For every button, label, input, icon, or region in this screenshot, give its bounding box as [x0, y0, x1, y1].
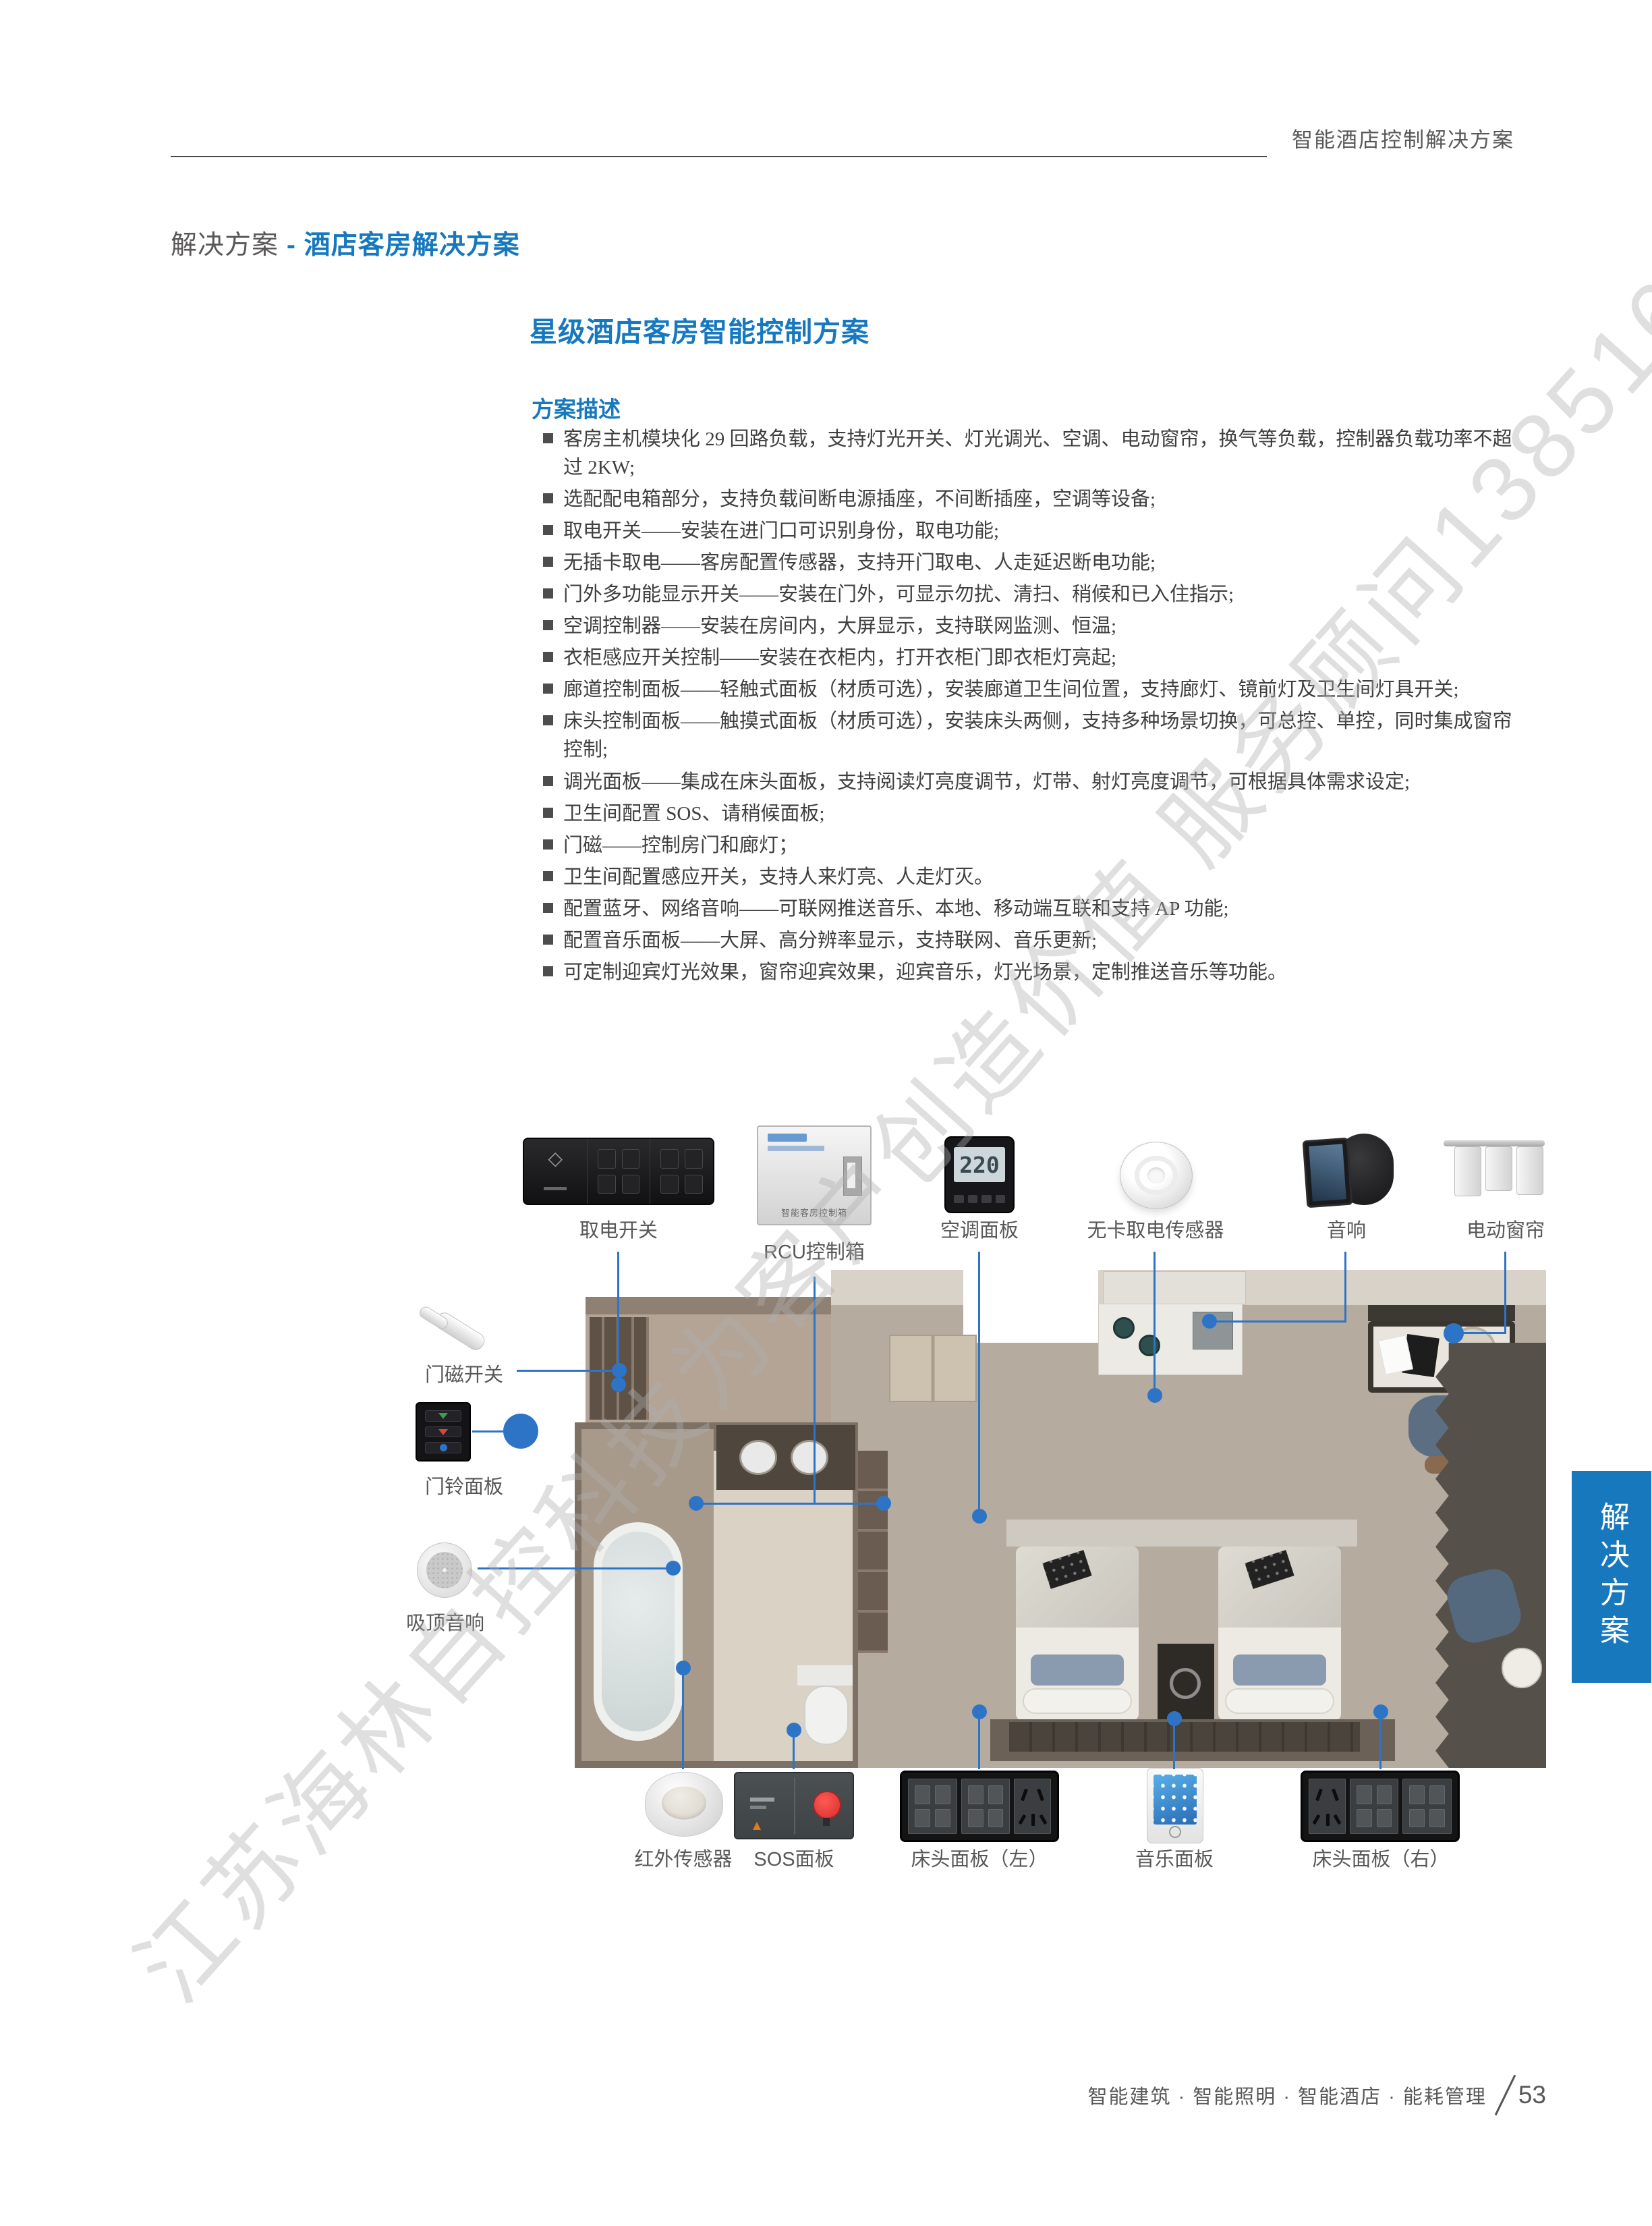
header-rule — [171, 156, 1267, 157]
connector-ceiling-speaker — [478, 1567, 666, 1569]
button-key — [622, 1175, 640, 1194]
sos-button — [813, 1791, 841, 1819]
device-label-rcu-box: RCU控制箱 — [764, 1236, 865, 1264]
floorplan-toilet-tank — [797, 1665, 853, 1686]
page-footer: 智能建筑 · 智能照明 · 智能酒店 · 能耗管理 53 — [1088, 2073, 1546, 2117]
device-label-cardless-sensor: 无卡取电传感器 — [1087, 1215, 1224, 1243]
device-label-music-panel: 音乐面板 — [1135, 1843, 1214, 1872]
button-key — [622, 1149, 640, 1169]
ceiling-speaker-device — [417, 1542, 472, 1598]
side-tab-solutions: 解决方案 — [1572, 1471, 1651, 1683]
floorplan-pillow — [1233, 1654, 1326, 1686]
list-item: 选配配电箱部分，支持负载间断电源插座，不间断插座，空调等设备; — [543, 485, 1520, 513]
floorplan-headboard-wall — [1006, 1520, 1357, 1547]
sos-panel-device — [734, 1772, 854, 1839]
bedside-panel-right-device — [1301, 1771, 1460, 1842]
list-item: 门外多功能显示开关——安装在门外，可显示勿扰、清扫、稍候和已入住指示; — [543, 580, 1520, 609]
switch-section — [908, 1779, 957, 1834]
connector-dot — [876, 1496, 891, 1511]
list-item: 配置音乐面板——大屏、高分辨率显示，支持联网、音乐更新; — [543, 926, 1520, 955]
page-title: 星级酒店客房智能控制方案 — [530, 309, 870, 350]
device-label-sos-panel: SOS面板 — [753, 1843, 834, 1872]
floorplan-sink — [791, 1440, 828, 1475]
floorplan-bed-left — [1016, 1547, 1139, 1721]
button-key — [598, 1149, 616, 1169]
connector-dot — [1147, 1388, 1162, 1403]
doorbell-panel-device — [416, 1402, 471, 1462]
socket-section — [1309, 1779, 1346, 1834]
connector-dot — [666, 1561, 681, 1576]
switch-section — [961, 1779, 1010, 1834]
doorbell-key — [425, 1426, 461, 1438]
floorplan-nightstand-speaker — [1170, 1668, 1201, 1699]
button-key — [660, 1149, 679, 1169]
connector-ac-panel — [978, 1252, 980, 1509]
home-button — [1169, 1826, 1181, 1838]
switch-section — [1402, 1779, 1452, 1834]
power-switch-device: ◇ — [523, 1138, 714, 1205]
brand-logo — [768, 1134, 807, 1142]
device-label-bedside-left: 床头面板（左） — [911, 1843, 1048, 1872]
breadcrumb: 解决方案 - 酒店客房解决方案 — [171, 224, 520, 262]
switch-section — [650, 1139, 713, 1204]
connector-curtain — [1504, 1252, 1506, 1334]
clean-room-icon — [438, 1429, 448, 1435]
doorbell-key — [425, 1410, 461, 1422]
speaker-device — [1297, 1131, 1396, 1208]
music-panel-device — [1147, 1768, 1203, 1843]
ac-panel-device: 220 — [944, 1136, 1015, 1213]
wait-icon — [753, 1822, 761, 1830]
connector-bedside-left — [978, 1717, 980, 1769]
do-not-disturb-icon — [438, 1413, 448, 1419]
curtain-motor — [1516, 1146, 1543, 1195]
device-label-power-switch: 取电开关 — [579, 1215, 658, 1243]
list-item: 调光面板——集成在床头面板，支持阅读灯亮度调节，灯带、射灯亮度调节，可根据具体需… — [543, 768, 1520, 796]
breadcrumb-prefix: 解决方案 — [171, 231, 279, 260]
breadcrumb-separator: - — [279, 231, 304, 260]
curtain-rail — [1444, 1140, 1545, 1146]
curtain-motor — [1454, 1146, 1481, 1196]
device-label-doorbell: 门铃面板 — [425, 1471, 503, 1499]
list-item: 廊道控制面板——轻触式面板（材质可选），安装廊道卫生间位置，支持廊灯、镜前灯及卫… — [543, 675, 1520, 704]
connector-dot — [689, 1496, 704, 1511]
list-item: 空调控制器——安装在房间内，大屏显示，支持联网监测、恒温; — [543, 612, 1520, 640]
breadcrumb-current: 酒店客房解决方案 — [304, 231, 520, 260]
rcu-slot — [843, 1157, 862, 1196]
feature-list: 客房主机模块化 29 回路负载，支持灯光开关、灯光调光、空调、电动窗帘，换气等负… — [543, 425, 1520, 990]
floorplan-pillow — [1031, 1654, 1124, 1686]
floorplan-sink — [739, 1440, 777, 1475]
connector-speaker-branch — [1209, 1320, 1346, 1323]
bedside-panel-left-device — [900, 1771, 1059, 1842]
connector-dot — [612, 1363, 627, 1378]
list-item: 衣柜感应开关控制——安装在衣柜内，打开衣柜门即衣柜灯亮起; — [543, 644, 1520, 672]
curtain-motor — [1485, 1146, 1512, 1191]
connector-dot — [1373, 1704, 1388, 1719]
floorplan-desk-back-panel — [1368, 1305, 1515, 1321]
header-title: 智能酒店控制解决方案 — [1292, 123, 1514, 153]
ir-sensor-device — [645, 1772, 723, 1837]
floorplan-closet — [889, 1335, 977, 1402]
device-label-door-magnet: 门磁开关 — [425, 1359, 503, 1387]
device-label-bedside-right: 床头面板（右） — [1312, 1843, 1449, 1872]
floorplan-blanket-roll — [1023, 1688, 1132, 1714]
label-bar — [750, 1806, 766, 1809]
floorplan-curtain — [1435, 1343, 1546, 1768]
switch-section — [1350, 1779, 1399, 1834]
connector-dot — [787, 1723, 801, 1737]
floorplan-burner — [1113, 1317, 1135, 1339]
button-key — [685, 1175, 703, 1194]
curtain-motor-device — [1444, 1131, 1545, 1204]
floorplan-bed-right — [1218, 1547, 1341, 1721]
connector-dot — [611, 1377, 626, 1392]
connector-dot — [676, 1661, 691, 1675]
panel-divider — [794, 1777, 795, 1834]
button-key — [685, 1149, 703, 1169]
floorplan-blanket-roll — [1225, 1688, 1334, 1714]
connector-doorbell — [472, 1430, 507, 1432]
card-slot-section: ◇ — [524, 1139, 588, 1204]
connector-rcu-branch — [696, 1503, 884, 1505]
switch-section — [588, 1139, 651, 1204]
connector-speaker — [1344, 1252, 1346, 1323]
connector-ir-sensor — [682, 1673, 684, 1769]
bell-icon — [440, 1444, 447, 1451]
connector-dot — [503, 1414, 538, 1449]
floorplan-minibar-shelf — [1103, 1271, 1246, 1305]
device-label-ac-panel: 空调面板 — [940, 1215, 1019, 1243]
label-bar — [750, 1798, 774, 1802]
rcu-box-device: 智能客房控制箱 — [757, 1125, 872, 1225]
connector-dot — [1202, 1314, 1217, 1329]
subsection-title: 方案描述 — [532, 391, 621, 424]
connector-cardless-sensor — [1153, 1252, 1156, 1389]
list-item: 卫生间配置感应开关，支持人来灯亮、人走灯灭。 — [543, 863, 1520, 891]
floorplan-bathtub-interior — [602, 1532, 675, 1731]
list-item: 床头控制面板——触摸式面板（材质可选），安装床头两侧，支持多种场景切换，可总控、… — [543, 707, 1520, 764]
device-label-curtain: 电动窗帘 — [1466, 1215, 1545, 1243]
speaker-dock-tablet — [1303, 1138, 1353, 1208]
floorplan-corridor-wall — [586, 1297, 831, 1314]
list-item: 配置蓝牙、网络音响——可联网推送音乐、本地、移动端互联和支持 AP 功能; — [543, 895, 1520, 923]
connector-music-panel — [1173, 1724, 1175, 1769]
connector-dot — [1167, 1711, 1182, 1726]
side-tab-label: 解决方案 — [1590, 1501, 1633, 1652]
floorplan-side-table — [1502, 1648, 1542, 1688]
ac-display: 220 — [954, 1147, 1005, 1182]
connector-door-magnet — [517, 1370, 613, 1372]
brand-logo-text — [768, 1146, 824, 1151]
floorplan-bed-runner — [1009, 1722, 1360, 1752]
list-item: 卫生间配置 SOS、请稍候面板; — [543, 800, 1520, 828]
floorplan-toilet — [804, 1686, 849, 1745]
page-number: 53 — [1518, 2081, 1546, 2109]
list-item: 取电开关——安装在进门口可识别身份，取电功能; — [543, 517, 1520, 545]
footer-divider — [1495, 2075, 1516, 2116]
card-insert-icon: ◇ — [548, 1147, 563, 1169]
device-label-ceiling-speaker: 吸顶音响 — [406, 1607, 484, 1636]
connector-sos — [793, 1735, 795, 1769]
doorbell-key — [425, 1442, 461, 1453]
floorplan-vanity — [716, 1425, 855, 1490]
connector-dot — [1444, 1323, 1464, 1343]
list-item: 无插卡取电——客房配置传感器，支持开门取电、人走延迟断电功能; — [543, 549, 1520, 577]
sos-pull-pin — [823, 1818, 830, 1826]
list-item: 可定制迎宾灯光效果，窗帘迎宾效果，迎宾音乐，灯光场景，定制推送音乐等功能。 — [543, 958, 1520, 986]
door-magnet-device — [413, 1309, 494, 1356]
connector-dot — [972, 1704, 987, 1719]
connector-dot — [972, 1509, 987, 1524]
connector-bedside-right — [1379, 1717, 1382, 1769]
floorplan-burner — [1139, 1335, 1160, 1356]
connector-rcu — [814, 1277, 816, 1505]
rcu-box-caption: 智能客房控制箱 — [758, 1206, 870, 1219]
connector-power-switch — [617, 1252, 619, 1380]
floorplan-notch — [963, 1267, 1098, 1343]
cardless-sensor-device — [1120, 1142, 1193, 1209]
button-key — [598, 1175, 616, 1194]
document-page: 智能酒店控制解决方案 解决方案 - 酒店客房解决方案 星级酒店客房智能控制方案 … — [0, 0, 1652, 2226]
music-touchscreen — [1153, 1775, 1197, 1825]
ac-buttons — [954, 1195, 1005, 1203]
footer-tagline: 智能建筑 · 智能照明 · 智能酒店 · 能耗管理 — [1088, 2081, 1487, 2109]
device-label-ir-sensor: 红外传感器 — [634, 1843, 732, 1872]
list-item: 门磁——控制房门和廊灯； — [543, 831, 1520, 860]
list-item: 客房主机模块化 29 回路负载，支持灯光开关、灯光调光、空调、电动窗帘，换气等负… — [543, 425, 1520, 482]
label-bar — [544, 1187, 567, 1190]
button-key — [660, 1175, 679, 1194]
magnet-body — [418, 1304, 451, 1331]
socket-section — [1014, 1779, 1051, 1834]
device-label-speaker: 音响 — [1327, 1215, 1366, 1243]
